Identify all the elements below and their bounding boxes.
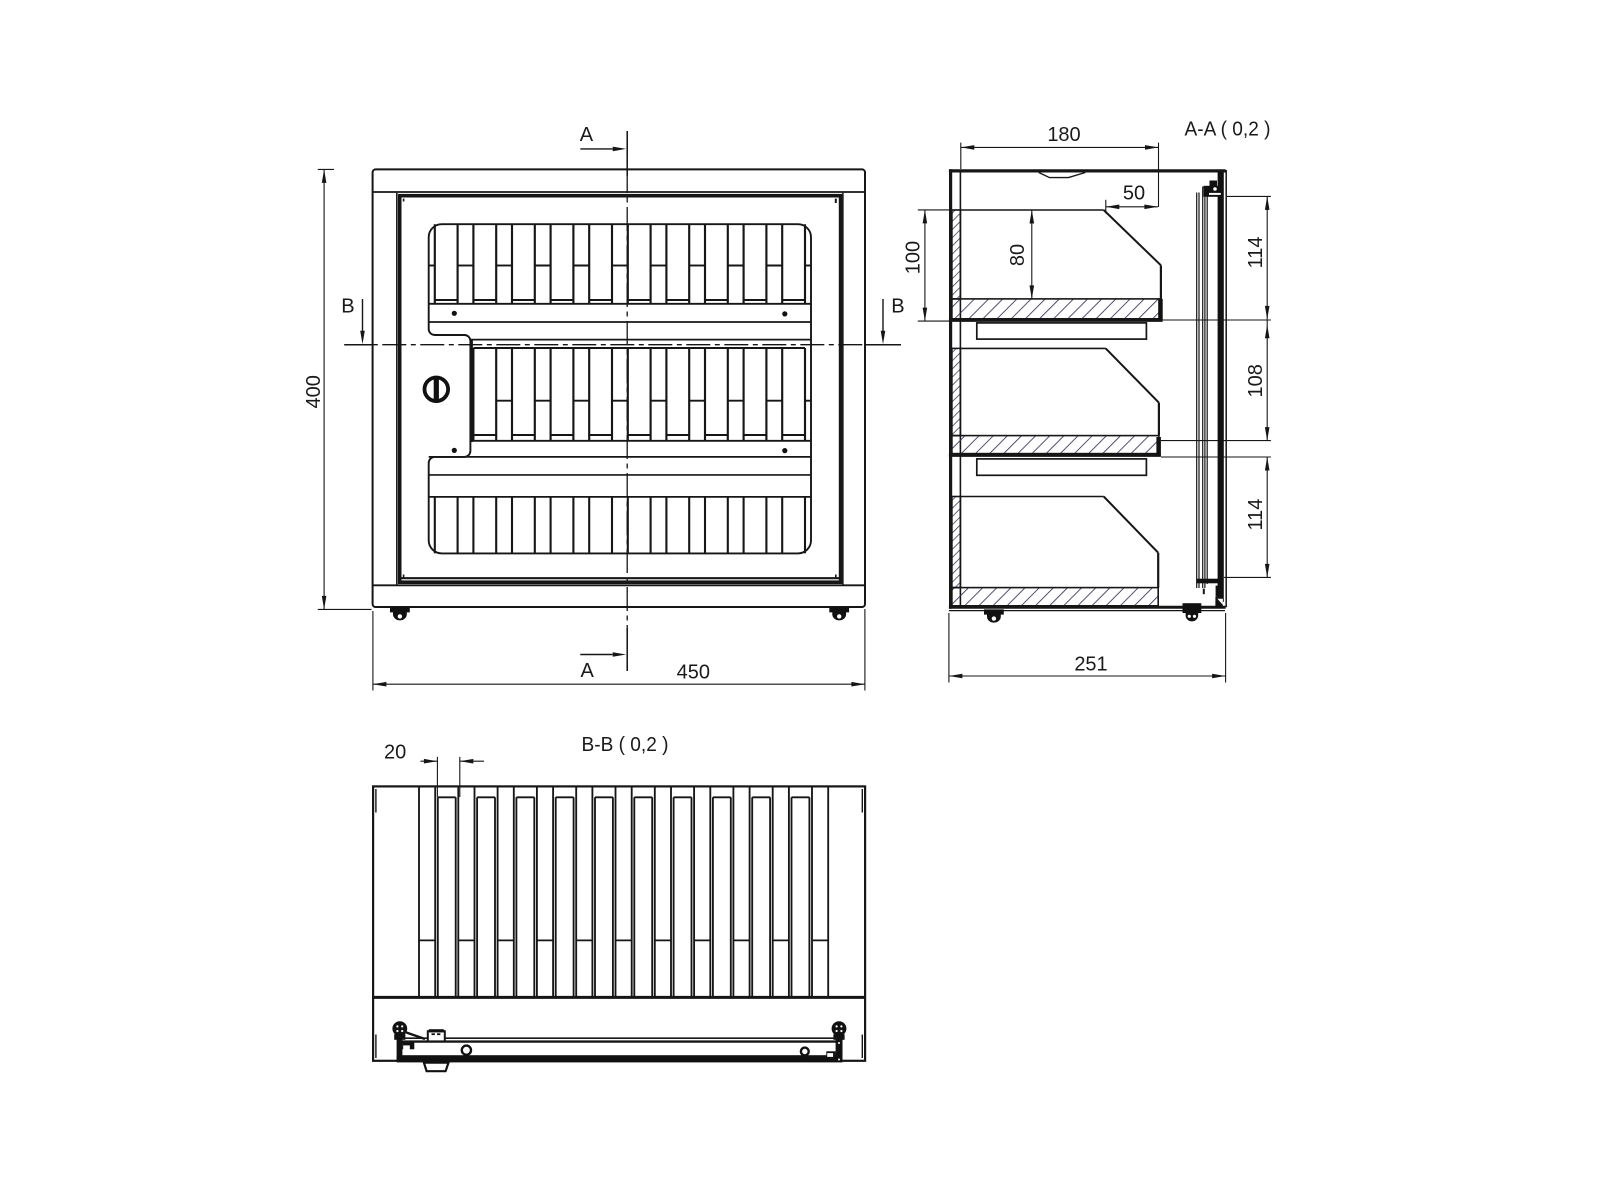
svg-text:A: A <box>580 124 594 146</box>
svg-text:450: 450 <box>677 662 710 684</box>
svg-text:B: B <box>891 296 904 318</box>
svg-text:100: 100 <box>902 241 924 274</box>
svg-text:A: A <box>581 660 595 682</box>
svg-text:A-A ( 0,2 ): A-A ( 0,2 ) <box>1185 117 1271 140</box>
svg-text:180: 180 <box>1047 124 1080 146</box>
svg-text:B-B ( 0,2 ): B-B ( 0,2 ) <box>582 733 669 756</box>
svg-text:108: 108 <box>1245 364 1267 397</box>
svg-text:400: 400 <box>303 375 325 408</box>
svg-text:251: 251 <box>1074 653 1107 675</box>
svg-text:114: 114 <box>1245 499 1267 531</box>
svg-text:50: 50 <box>1123 182 1145 204</box>
svg-text:114: 114 <box>1245 236 1267 268</box>
svg-text:80: 80 <box>1007 244 1029 266</box>
svg-text:20: 20 <box>384 741 406 763</box>
svg-text:B: B <box>341 296 354 318</box>
